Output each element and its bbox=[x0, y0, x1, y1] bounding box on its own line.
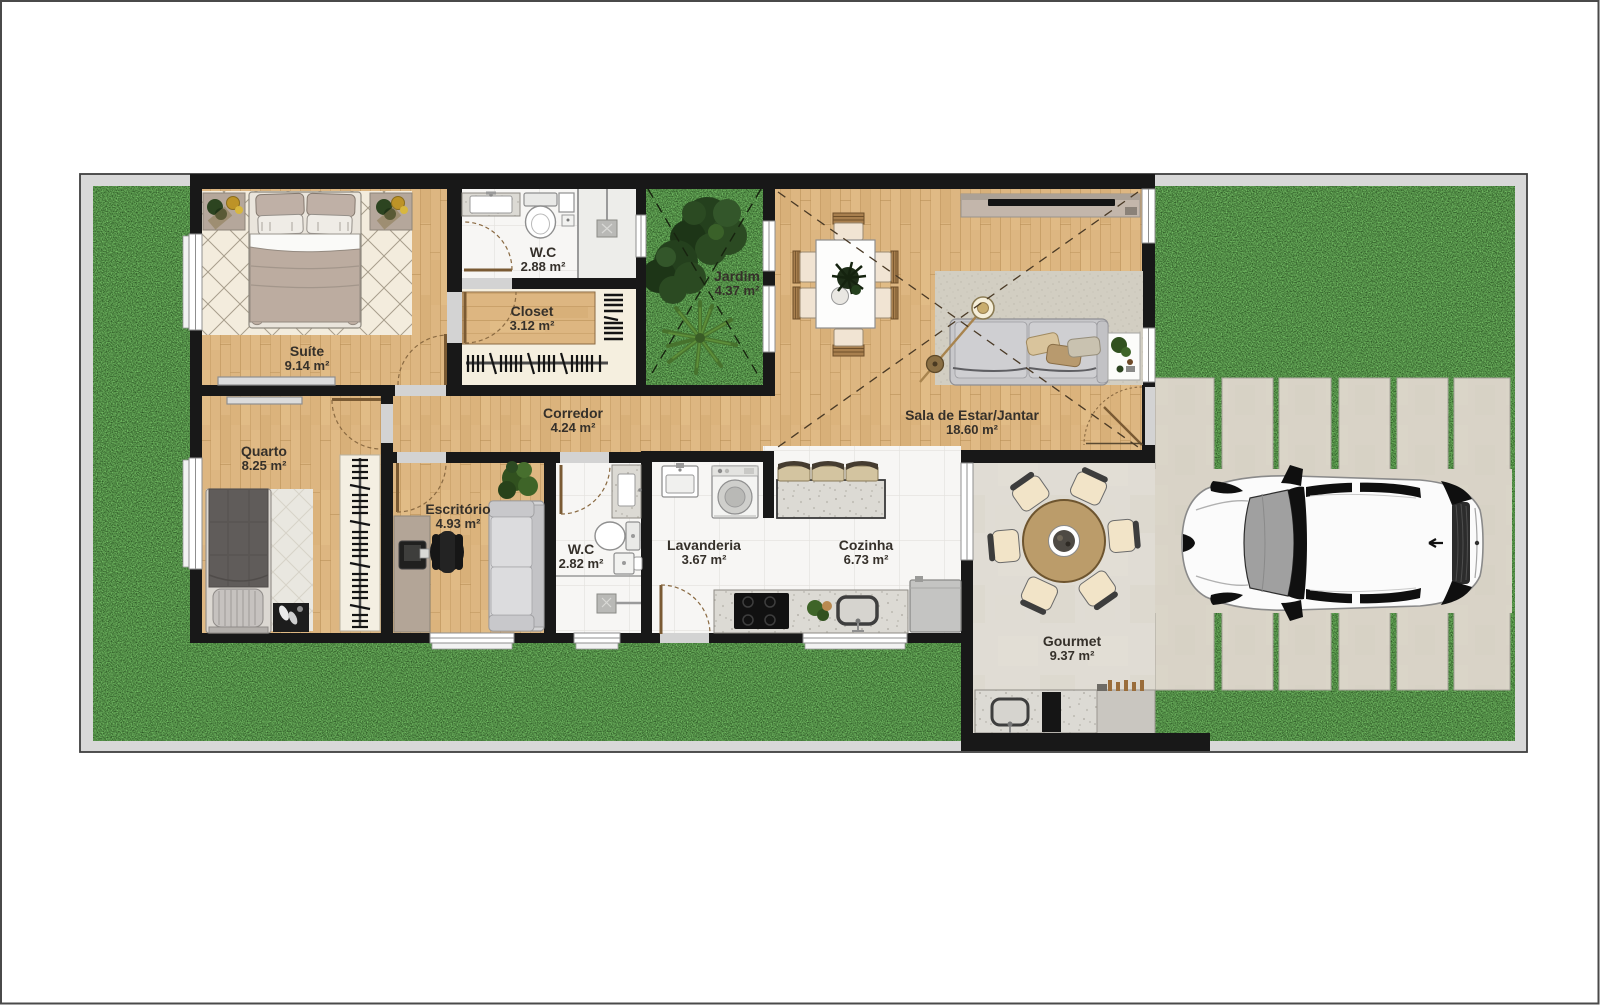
svg-text:8.25 m²: 8.25 m² bbox=[242, 458, 287, 473]
svg-text:9.37 m²: 9.37 m² bbox=[1050, 648, 1095, 663]
svg-text:3.67 m²: 3.67 m² bbox=[682, 552, 727, 567]
svg-text:Corredor: Corredor bbox=[543, 405, 603, 421]
svg-text:Suíte: Suíte bbox=[290, 343, 324, 359]
svg-text:Lavanderia: Lavanderia bbox=[667, 537, 741, 553]
svg-text:W.C: W.C bbox=[568, 541, 594, 557]
svg-text:Jardim: Jardim bbox=[714, 268, 760, 284]
svg-text:Cozinha: Cozinha bbox=[839, 537, 894, 553]
svg-text:2.88 m²: 2.88 m² bbox=[521, 259, 566, 274]
svg-text:2.82 m²: 2.82 m² bbox=[559, 556, 604, 571]
svg-text:W.C: W.C bbox=[530, 244, 556, 260]
svg-text:18.60 m²: 18.60 m² bbox=[946, 422, 999, 437]
svg-text:Closet: Closet bbox=[511, 303, 554, 319]
svg-text:3.12 m²: 3.12 m² bbox=[510, 318, 555, 333]
svg-text:9.14 m²: 9.14 m² bbox=[285, 358, 330, 373]
svg-text:Escritório: Escritório bbox=[425, 501, 490, 517]
svg-text:4.93 m²: 4.93 m² bbox=[436, 516, 481, 531]
svg-text:Sala de Estar/Jantar: Sala de Estar/Jantar bbox=[905, 407, 1039, 423]
svg-text:4.24 m²: 4.24 m² bbox=[551, 420, 596, 435]
svg-text:Quarto: Quarto bbox=[241, 443, 287, 459]
svg-text:Gourmet: Gourmet bbox=[1043, 633, 1102, 649]
svg-text:6.73 m²: 6.73 m² bbox=[844, 552, 889, 567]
svg-text:4.37 m²: 4.37 m² bbox=[715, 283, 760, 298]
